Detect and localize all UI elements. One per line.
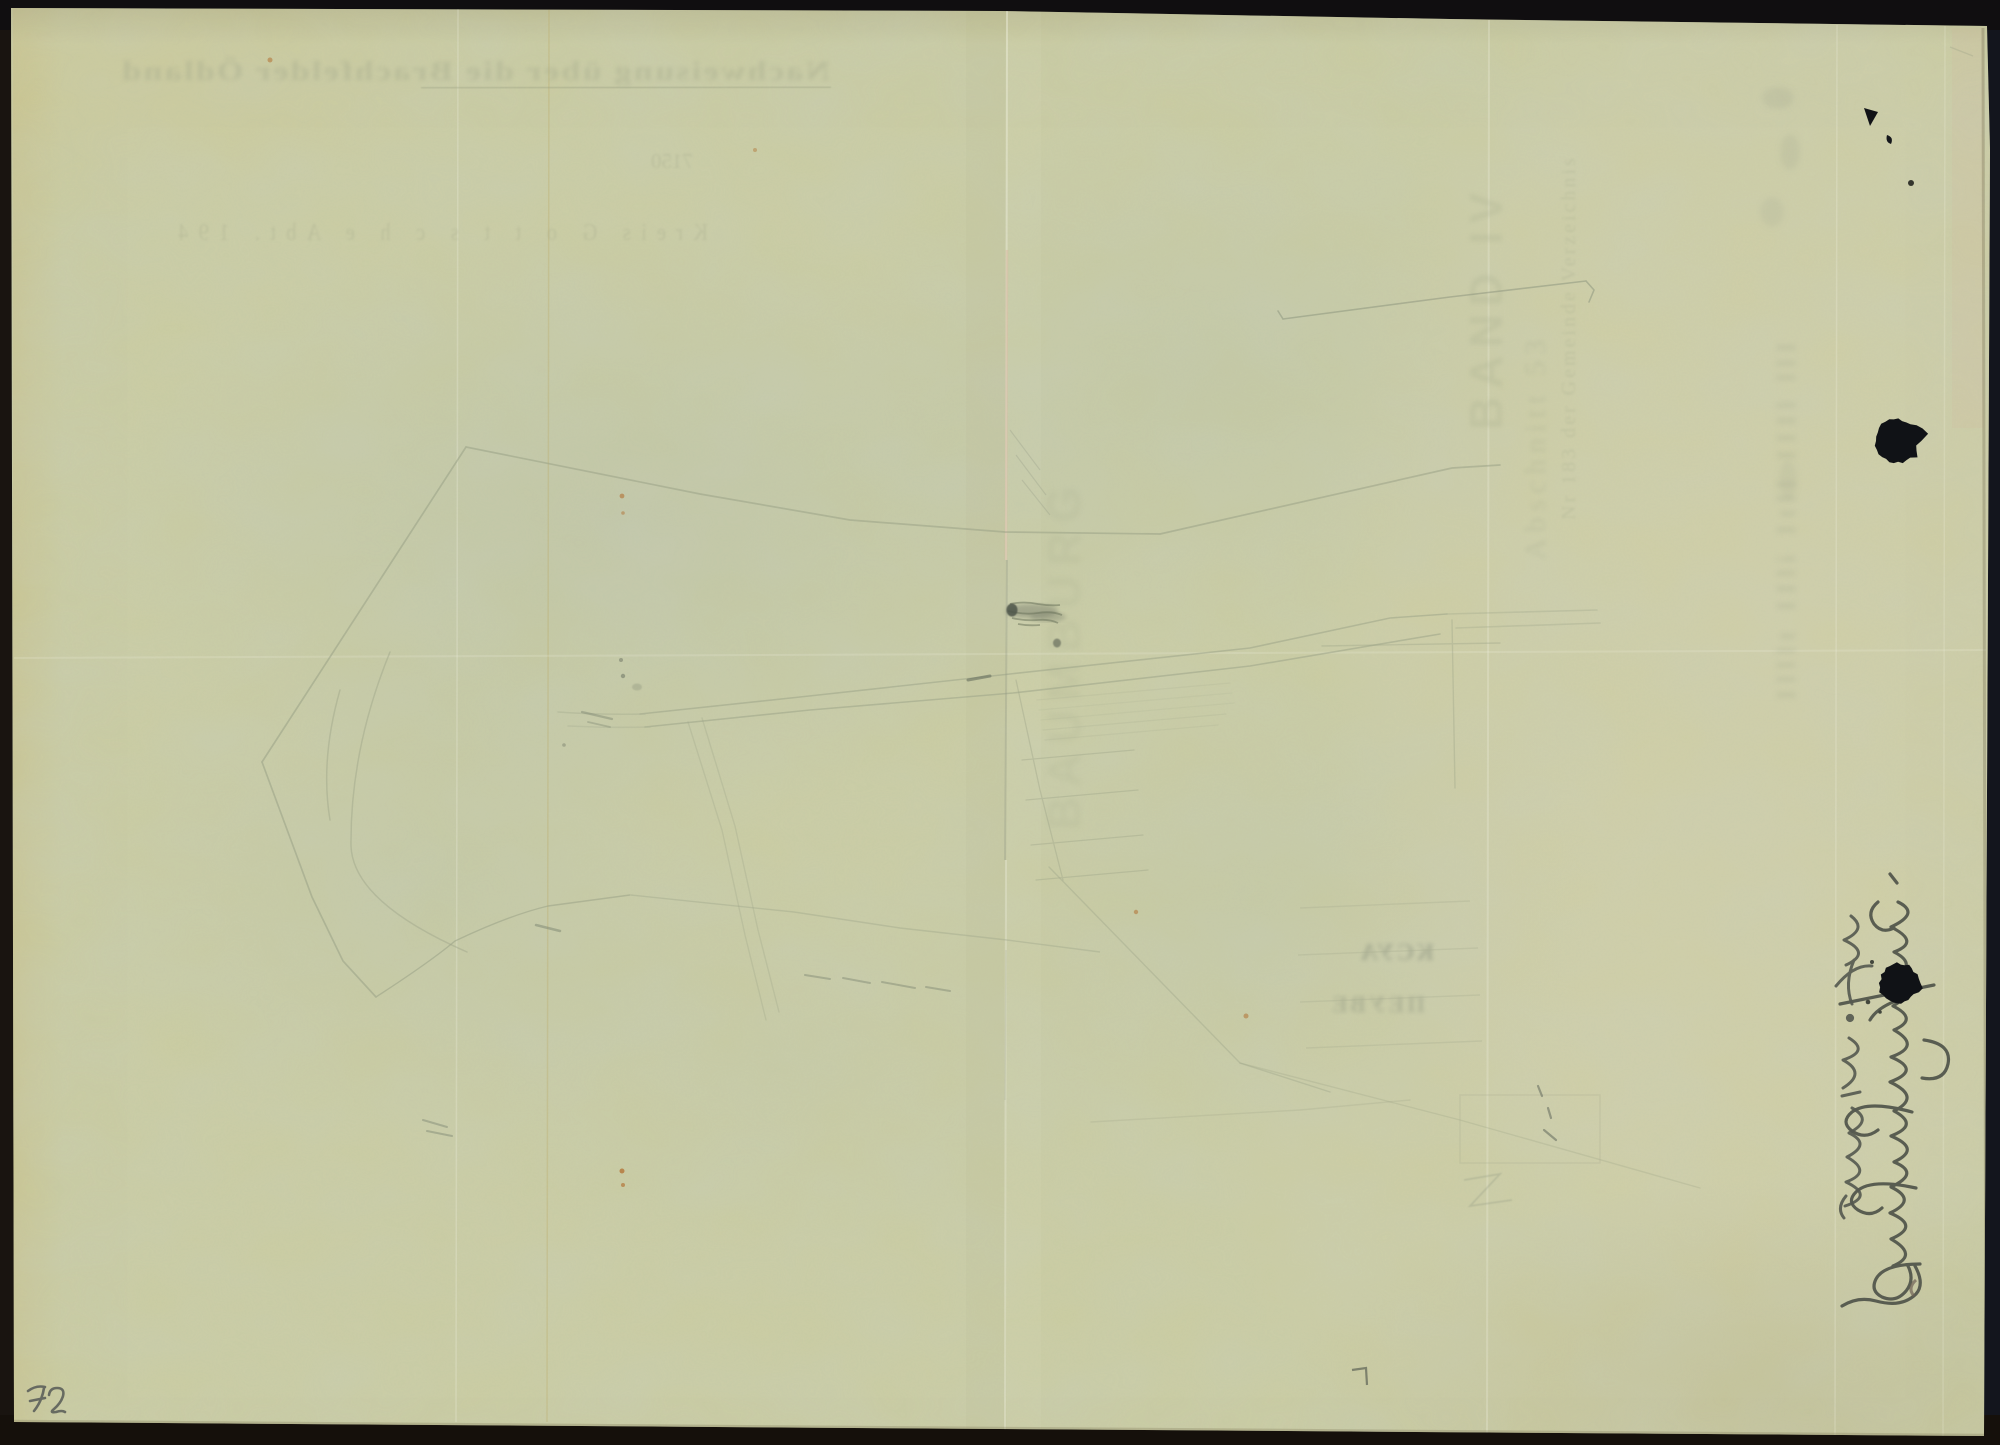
svg-text:Kreis G o t t s c h e Abt. 19: Kreis G o t t s c h e Abt. 194 [168, 220, 708, 246]
svg-text:Illlt IIli Itll IIIl llI: Illlt IIli Itll IIIl llI [1772, 336, 1801, 701]
svg-text:ПЕУВЕ: ПЕУВЕ [1329, 992, 1425, 1017]
svg-text:КСУА: КСУА [1358, 940, 1434, 966]
svg-text:BAND IV: BAND IV [1460, 185, 1512, 430]
svg-text:Abschnitt 53: Abschnitt 53 [1519, 334, 1552, 560]
svg-text:Nachweisung über die Brachfeld: Nachweisung über die Brachfelder Ödland [120, 56, 830, 86]
svg-text:BAUMBURG: BAUMBURG [1038, 477, 1090, 830]
svg-text:7150: 7150 [651, 149, 693, 173]
svg-text:Nr 183 der Gemeinde Verzeichni: Nr 183 der Gemeinde Verzeichnis [1558, 155, 1580, 520]
